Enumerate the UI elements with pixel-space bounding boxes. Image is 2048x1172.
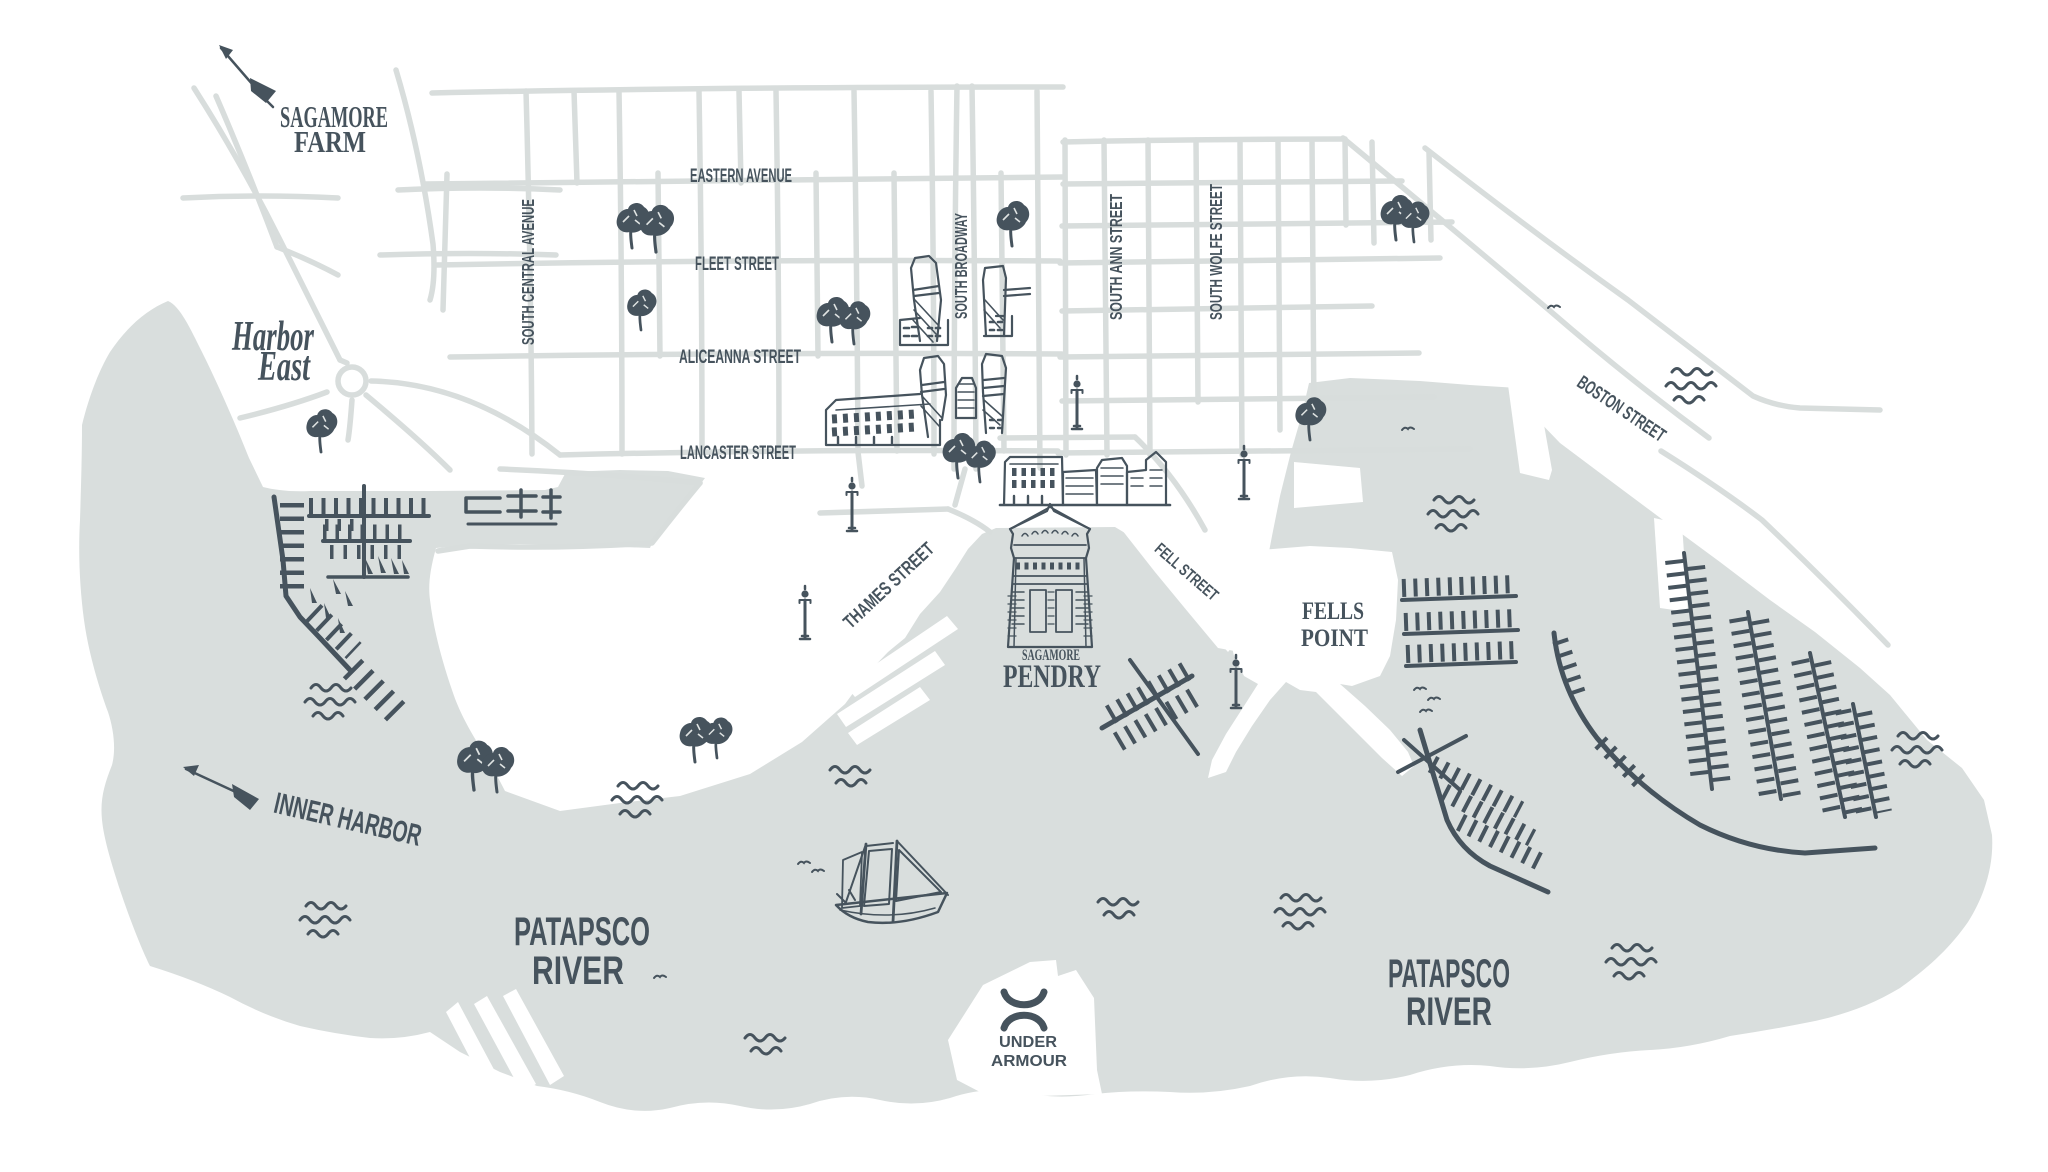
svg-text:ARMOUR: ARMOUR bbox=[991, 1053, 1067, 1070]
svg-text:LANCASTER STREET: LANCASTER STREET bbox=[680, 443, 796, 464]
svg-text:RIVER: RIVER bbox=[1406, 990, 1492, 1034]
svg-text:RIVER: RIVER bbox=[532, 949, 624, 993]
svg-text:POINT: POINT bbox=[1301, 625, 1368, 652]
svg-text:FELLS: FELLS bbox=[1302, 598, 1364, 625]
svg-text:PATAPSCO: PATAPSCO bbox=[514, 910, 650, 954]
svg-text:FLEET STREET: FLEET STREET bbox=[695, 254, 779, 275]
svg-text:ALICEANNA STREET: ALICEANNA STREET bbox=[679, 347, 801, 368]
svg-text:FARM: FARM bbox=[294, 124, 366, 159]
svg-text:PENDRY: PENDRY bbox=[1003, 659, 1101, 695]
svg-text:EASTERN AVENUE: EASTERN AVENUE bbox=[690, 166, 792, 187]
svg-text:SOUTH BROADWAY: SOUTH BROADWAY bbox=[951, 213, 971, 319]
svg-text:SOUTH CENTRAL AVENUE: SOUTH CENTRAL AVENUE bbox=[518, 199, 538, 345]
svg-text:SOUTH WOLFE STREET: SOUTH WOLFE STREET bbox=[1206, 184, 1226, 320]
svg-text:SOUTH ANN STREET: SOUTH ANN STREET bbox=[1106, 194, 1126, 320]
svg-text:UNDER: UNDER bbox=[999, 1034, 1057, 1051]
svg-text:East: East bbox=[257, 344, 311, 390]
